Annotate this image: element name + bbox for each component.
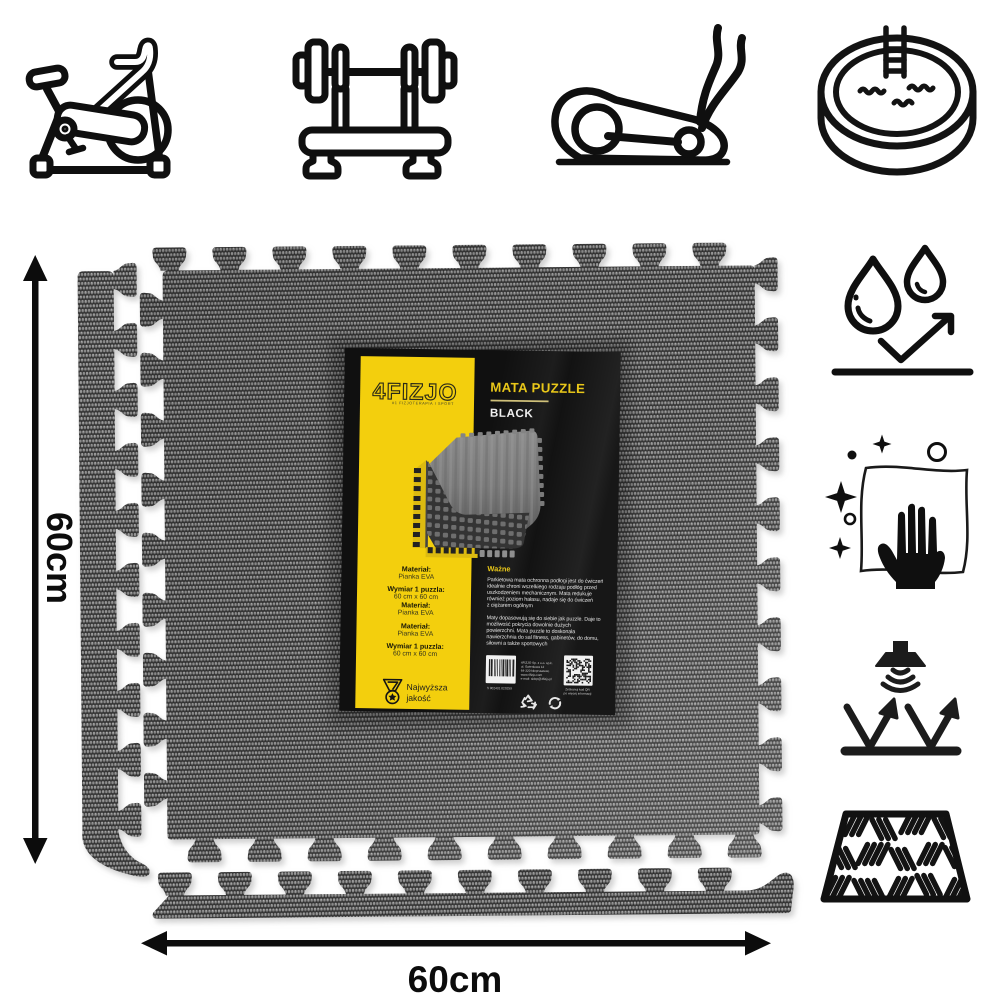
- svg-text:BLACK: BLACK: [490, 407, 534, 421]
- svg-text:5 902431 020259: 5 902431 020259: [487, 686, 512, 690]
- svg-text:Materiał:: Materiał:: [402, 565, 431, 573]
- svg-text:Materiał:: Materiał:: [401, 622, 430, 630]
- svg-text:#1 FIZJOTERAPIA I SPORT: #1 FIZJOTERAPIA I SPORT: [392, 400, 454, 406]
- svg-text:Pianka EVA: Pianka EVA: [398, 573, 434, 581]
- svg-text:Pianka EVA: Pianka EVA: [397, 630, 433, 638]
- svg-text:Ważne: Ważne: [487, 564, 510, 573]
- svg-text:e-mail: sklep@4fizjo.pl: e-mail: sklep@4fizjo.pl: [521, 677, 552, 681]
- svg-text:z ciężarem ogólnym: z ciężarem ogólnym: [487, 603, 534, 610]
- svg-text:60 cm x 60 cm: 60 cm x 60 cm: [394, 593, 439, 601]
- svg-text:siłowni a także sportowych: siłowni a także sportowych: [486, 641, 547, 648]
- svg-text:jakość: jakość: [405, 693, 431, 703]
- svg-text:po więcej informacji: po więcej informacji: [564, 691, 592, 695]
- svg-text:Materiał:: Materiał:: [401, 601, 430, 609]
- svg-text:60cm: 60cm: [39, 512, 80, 604]
- svg-text:60cm: 60cm: [408, 959, 503, 1000]
- svg-text:Pianka EVA: Pianka EVA: [398, 609, 434, 617]
- svg-text:Najwyższa: Najwyższa: [406, 682, 447, 693]
- svg-text:MATA PUZZLE: MATA PUZZLE: [490, 380, 585, 396]
- svg-text:60 cm x 60 cm: 60 cm x 60 cm: [393, 650, 438, 658]
